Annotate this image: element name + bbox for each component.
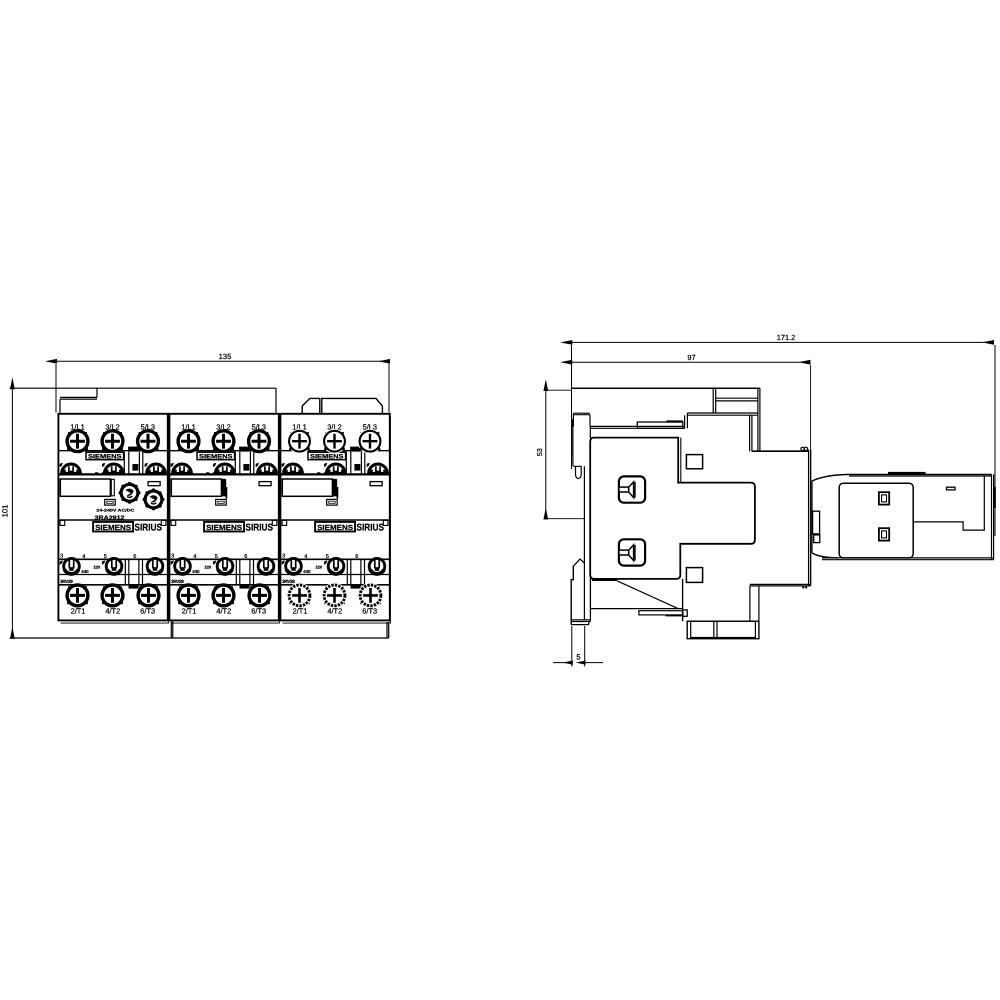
svg-text:171.2: 171.2 [777,333,796,342]
svg-text:97: 97 [687,353,695,362]
svg-text:135: 135 [219,352,232,361]
svg-text:3RA2912: 3RA2912 [95,515,125,522]
svg-text:101: 101 [1,505,10,518]
svg-text:5: 5 [576,652,580,661]
svg-text:24-240V AC/DC: 24-240V AC/DC [96,509,134,513]
svg-text:53: 53 [535,448,544,456]
